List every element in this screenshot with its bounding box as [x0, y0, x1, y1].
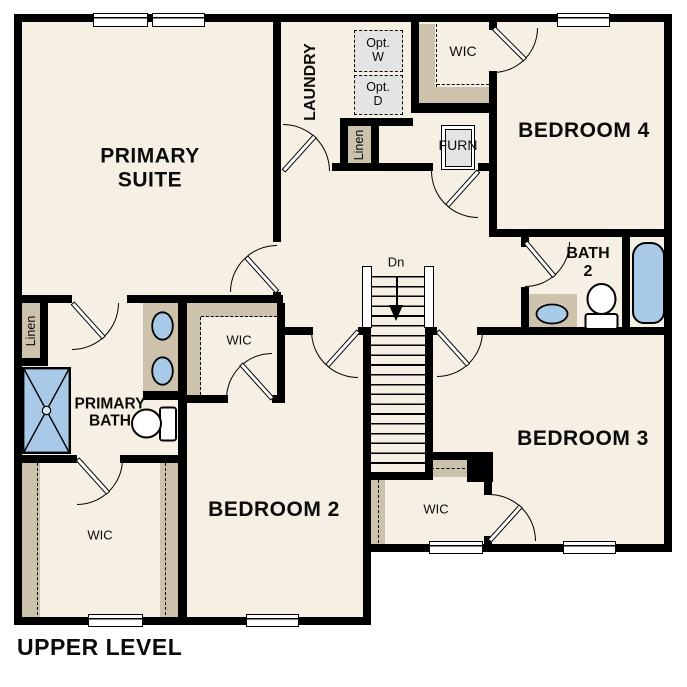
window [88, 614, 143, 627]
chase-block [467, 452, 493, 482]
floor-lower-left [22, 544, 363, 617]
closet-rod-line [437, 84, 489, 85]
bath2-label: BATH 2 [566, 245, 609, 281]
linen-hall-label-text: Linen [352, 130, 366, 161]
exterior-wall-left [14, 14, 22, 625]
linen-hall-east-wall [371, 118, 379, 171]
linen-hall-label: Linen [352, 130, 366, 161]
linen-hall-west-wall [340, 118, 348, 171]
primary-bath-south-wall [120, 455, 187, 463]
wic-bedroom4-label: WIC [449, 44, 476, 60]
primary-suite-label-line2: SUITE [100, 168, 200, 192]
stair-railing [362, 266, 372, 328]
sink [150, 355, 175, 387]
stair-railing [424, 266, 434, 328]
primary-vanity-wall [143, 391, 187, 400]
opt-washer-line2: W [366, 50, 390, 64]
window [557, 13, 610, 27]
wic-primary-shelf-right [160, 463, 178, 617]
furnace-label: FURN [439, 138, 478, 154]
opt-dryer-line1: Opt. [366, 80, 390, 94]
wic-bedroom4-shelf-bottom [419, 87, 489, 103]
bath2-label-line2: 2 [566, 263, 609, 281]
sink [534, 302, 570, 326]
primary-suite-south-wall [127, 295, 283, 303]
primary-bath-label-line2: BATH [75, 413, 146, 430]
linen-primary-label-text: Linen [24, 316, 38, 347]
linen-primary-label: Linen [24, 316, 38, 347]
closet-rod-line [201, 316, 277, 317]
opt-washer-label: Opt. W [366, 36, 390, 64]
primary-suite-label-line1: PRIMARY [100, 144, 200, 168]
exterior-wall-step [363, 544, 371, 625]
closet-rod-line [200, 317, 201, 395]
bedroom3-label: BEDROOM 3 [517, 427, 649, 451]
wic-primary-label: WIC [87, 529, 112, 544]
linen-primary-south-wall [14, 358, 48, 366]
wic-bedroom2-label: WIC [226, 334, 251, 349]
window [246, 614, 299, 627]
wic-bedroom2-shelf-left [187, 303, 201, 395]
primary-suite-east-wall [273, 22, 281, 242]
stair-down-arrow-head [389, 305, 403, 321]
opt-dryer-line2: D [366, 94, 390, 108]
wic-bedroom3-north-wall [425, 452, 467, 460]
bedroom2-label: BEDROOM 2 [208, 498, 340, 522]
bedroom4-west-wall [489, 71, 497, 237]
wic-bedroom4-south-wall [411, 103, 497, 113]
linen-primary-east-wall [40, 295, 48, 366]
plan-title: UPPER LEVEL [17, 634, 182, 661]
stairs-down-label: Dn [388, 256, 405, 271]
window [93, 13, 148, 27]
sink [150, 310, 175, 342]
floor-plan: PRIMARY SUITE LAUNDRY Opt. W Opt. D WIC … [0, 0, 687, 687]
opt-washer-line1: Opt. [366, 36, 390, 50]
stairwell-west-wall [363, 327, 371, 480]
stair-down-arrow [396, 277, 398, 307]
window [152, 13, 205, 27]
laundry-label-text: LAUNDRY [302, 43, 320, 121]
shower [22, 367, 71, 454]
closet-rod-line [431, 468, 465, 469]
primary-bath-label: PRIMARY BATH [75, 396, 146, 431]
bath2-label-line1: BATH [566, 245, 609, 263]
bathtub [632, 242, 665, 324]
primary-bath-south-wall [22, 455, 77, 463]
wic-bedroom3-west-wall [363, 480, 371, 544]
bedroom4-label: BEDROOM 4 [518, 119, 650, 143]
window [563, 541, 616, 554]
closet-rod-line [165, 463, 166, 615]
exterior-wall-right [664, 14, 672, 552]
exterior-wall-bottom-right [363, 544, 672, 552]
wic-bedroom4-west-wall [411, 22, 419, 113]
closet-rod-line [378, 480, 379, 543]
toilet [584, 283, 620, 331]
exterior-wall-bottom-left [14, 617, 371, 625]
bedroom4-south-wall [489, 229, 672, 237]
opt-dryer-label: Opt. D [366, 80, 390, 108]
laundry-label: LAUNDRY [302, 43, 320, 121]
wic-bedroom3-label: WIC [423, 503, 448, 518]
closet-rod-line [436, 24, 437, 87]
hall-south-wall [283, 327, 313, 335]
bath2-south-wall [477, 327, 672, 335]
primary-suite-label: PRIMARY SUITE [100, 144, 200, 191]
window [429, 541, 483, 554]
closet-rod-line [37, 463, 38, 615]
tub-niche-wall [622, 237, 630, 333]
stairwell-bottom-wall [363, 472, 433, 480]
wic-bedroom2-east-wall [277, 303, 285, 403]
primary-bath-label-line1: PRIMARY [75, 396, 146, 413]
wic-bedroom2-south-wall [187, 395, 228, 403]
